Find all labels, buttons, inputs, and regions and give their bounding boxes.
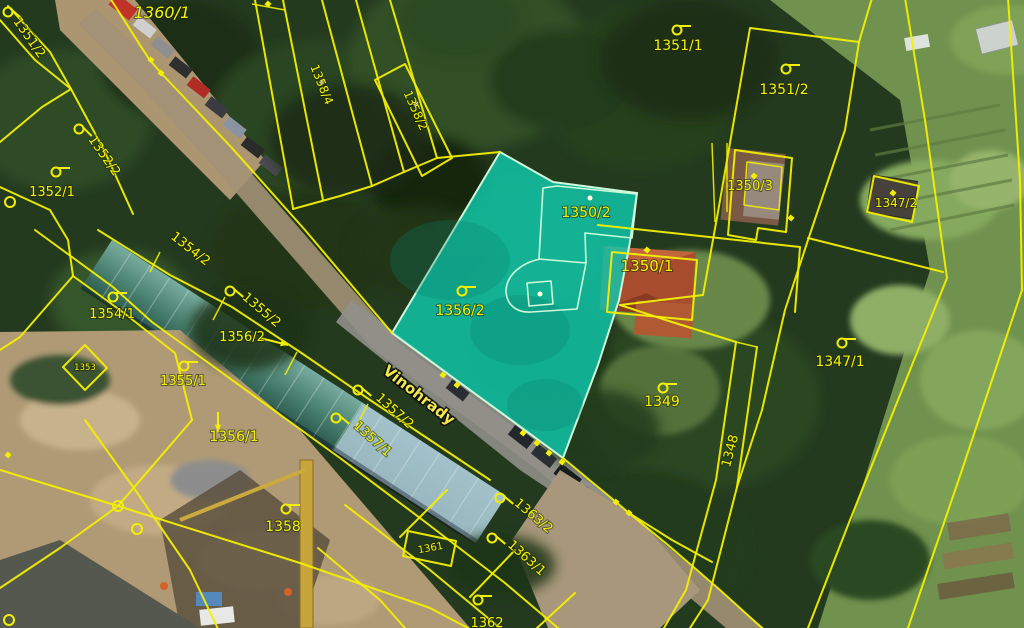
parcel-label-1356-2: 1356/2 (219, 330, 265, 345)
vertex-marker-icon (4, 451, 11, 458)
parcel-symbol-hook-icon (52, 168, 71, 177)
vertex-marker-icon (643, 246, 650, 253)
parcel-label-1350-1: 1350/1 (621, 257, 674, 275)
vertex-ring-icon (132, 524, 142, 534)
parcel-label-1356-1: 1356/1 (209, 429, 258, 445)
vertex-ring-icon (5, 197, 15, 207)
parcel-symbol-hook-icon (180, 362, 199, 371)
parcel-label-1360-1: 1360/1 (134, 3, 190, 22)
parcel-label-1361: 1361 (417, 541, 444, 556)
parcel-label-1351-1: 1351/1 (653, 38, 702, 54)
parcel-symbol-hook-icon (838, 339, 857, 348)
parcel-label-1358-4: 1358/4 (307, 62, 336, 106)
parcel-label-1355-2: 1355/2 (239, 290, 284, 331)
parcel-label-1350-2: 1350/2 (561, 205, 610, 221)
parcel-label-1351-2: 1351/2 (759, 82, 808, 98)
parcel-label-1349: 1349 (644, 394, 680, 410)
cadastral-map-canvas[interactable]: 1360/11351/21352/21352/11358/41358/21351… (0, 0, 1024, 628)
parcel-symbol-hook-icon (494, 492, 514, 511)
parcel-label-1355-1: 1355/1 (160, 374, 206, 389)
parcel-symbol-hook-icon (282, 505, 301, 514)
parcel-label-1363-2: 1363/2 (511, 496, 556, 537)
parcel-label-1350-3: 1350/3 (727, 179, 773, 194)
parcel-label-1358: 1358 (265, 519, 301, 535)
parcel-label-1352-1: 1352/1 (29, 185, 75, 200)
building-dot-icon (588, 196, 593, 201)
parcel-symbol-hook-icon (673, 26, 692, 35)
parcel-symbol-hook-icon (474, 596, 493, 605)
parcel-symbol-hook-icon (330, 412, 350, 431)
parcel-label-1356-2: 1356/2 (435, 303, 484, 319)
parcel-label-1354-2: 1354/2 (168, 229, 213, 269)
parcel-label-1357-1: 1357/1 (350, 419, 394, 461)
parcel-symbol-hook-icon (782, 65, 801, 74)
cadastral-layer: 1360/11351/21352/21352/11358/41358/21351… (0, 0, 1024, 628)
parcel-label-1347-1: 1347/1 (815, 354, 864, 370)
parcel-label-1362: 1362 (470, 616, 503, 628)
parcel-label-1353: 1353 (74, 363, 96, 373)
parcel-symbol-hook-icon (486, 532, 506, 551)
parcel-label-1354-1: 1354/1 (89, 307, 135, 322)
parcel-symbol-hook-icon (659, 384, 678, 393)
parcel-label-1347-2: 1347/2 (875, 196, 917, 210)
parcel-label-1358-2: 1358/2 (401, 88, 431, 132)
parcel-label-1363-1: 1363/1 (504, 538, 548, 580)
vertex-marker-icon (787, 214, 794, 221)
vertex-ring-icon (4, 615, 14, 625)
building-dot-icon (538, 292, 543, 297)
parcel-label-1352-2: 1352/2 (85, 133, 124, 179)
